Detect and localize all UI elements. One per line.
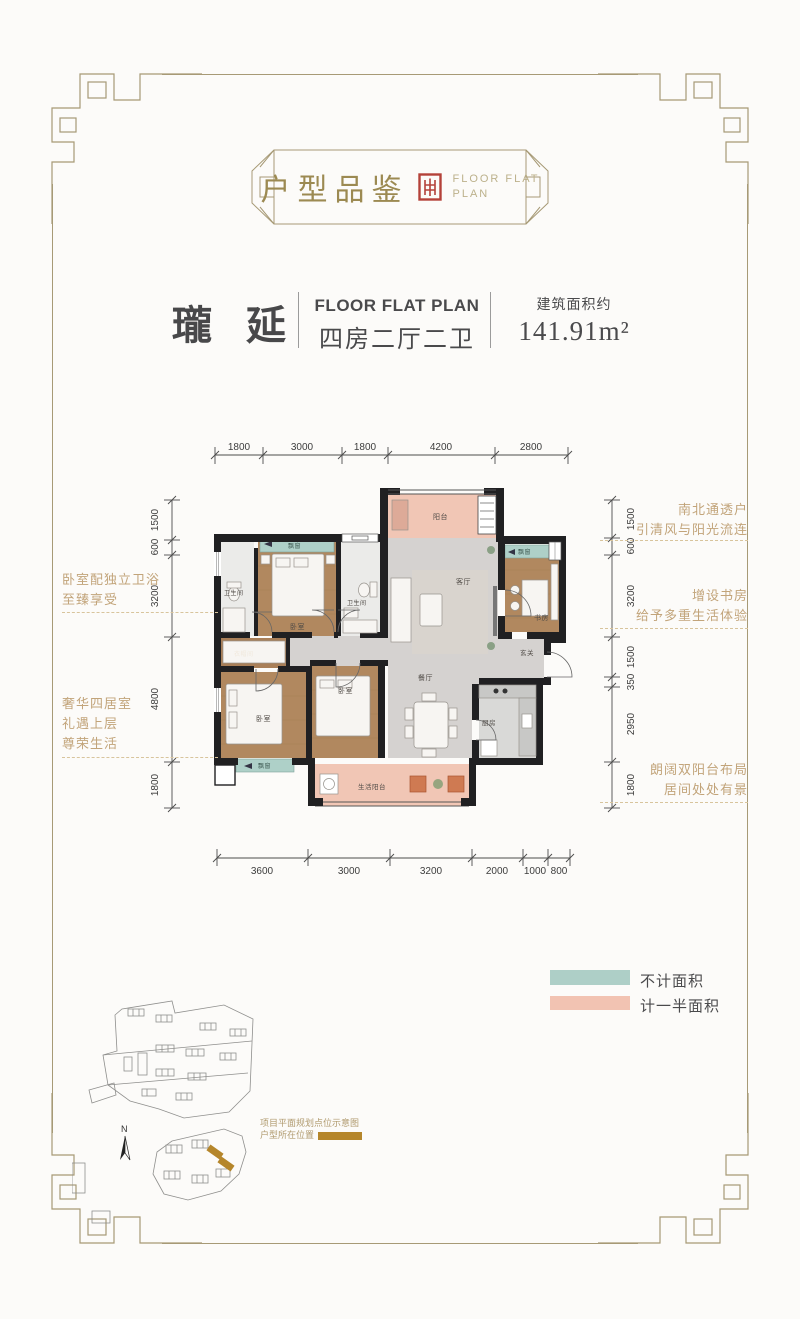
annotation-dash (600, 802, 748, 803)
dim-left-1: 600 (150, 538, 161, 555)
dim-bottom-5: 800 (551, 866, 568, 877)
annotation-left-2: 奢华四居室 礼遇上层 尊荣生活 (62, 694, 202, 754)
dim-bottom-2: 3200 (420, 866, 443, 877)
annotation-dash (600, 628, 748, 629)
highlighted-building (206, 1145, 234, 1172)
title-divider-2 (490, 292, 491, 348)
label-entry: 玄关 (520, 648, 534, 657)
dim-bottom-3: 2000 (486, 866, 509, 877)
layout-label: 四房二厅二卫 (308, 319, 486, 354)
annotation-right-3: 朗阔双阳台布局 居间处处有景 (608, 760, 748, 800)
label-cloakroom: 衣帽间 (234, 650, 254, 658)
dimension-chain-top: 1800 3000 1800 4200 2800 (205, 438, 575, 466)
dimension-chain-bottom: 3600 3000 3200 2000 1000 800 (205, 844, 575, 878)
dim-top-1: 3000 (291, 442, 314, 453)
site-plan-note: 项目平面规划点位示意图 户型所在位置 (260, 1117, 362, 1141)
dim-bottom-0: 3600 (251, 866, 274, 877)
area-label: 建筑面积约 (498, 294, 650, 314)
label-bedroom-1: 卧室 (290, 622, 305, 631)
dim-left-4: 1800 (150, 773, 161, 796)
ac-shaft (478, 496, 496, 534)
badge-subtitle: FLOOR FLAT PLAN (452, 172, 539, 202)
badge-subtitle-line2: PLAN (452, 188, 489, 200)
dimension-chain-left: 1500 600 3200 4800 1800 (146, 488, 204, 818)
label-balcony: 阳台 (433, 512, 448, 521)
area-value: 141.91m² (498, 316, 650, 347)
annotation-right-2: 增设书房 给予多重生活体验 (608, 586, 748, 626)
annotation-left-1: 卧室配独立卫浴 至臻享受 (62, 570, 202, 610)
dim-top-0: 1800 (228, 442, 251, 453)
label-kitchen: 厨房 (482, 718, 496, 727)
annotation-right-1: 南北通透户 引清风与阳光流连 (608, 500, 748, 540)
north-arrow-icon: N (120, 1124, 130, 1160)
site-plan-map: N (72, 995, 372, 1225)
badge-title: 户型品鉴 (260, 165, 408, 209)
annotation-dash (600, 540, 748, 541)
dim-top-4: 2800 (520, 442, 543, 453)
pillar (215, 765, 235, 785)
dim-top-3: 4200 (430, 442, 453, 453)
layout-block: FLOOR FLAT PLAN 四房二厅二卫 (308, 296, 486, 354)
unit-location-swatch (318, 1132, 362, 1140)
dim-bottom-4: 1000 (524, 866, 547, 877)
label-bay-1: 飘窗 (288, 542, 301, 550)
label-bay-master: 飘窗 (258, 762, 271, 770)
seal-icon (418, 173, 442, 201)
legend-swatch-half (550, 996, 630, 1010)
legend-label-excluded: 不计面积 (640, 970, 704, 991)
label-bathroom-1: 卫生间 (224, 589, 244, 597)
plan-en-label: FLOOR FLAT PLAN (308, 296, 486, 316)
label-living: 客厅 (456, 577, 471, 586)
label-bay-study: 飘窗 (518, 548, 531, 556)
north-label: N (121, 1124, 128, 1134)
frame-corner-bottom-right (598, 1093, 758, 1253)
dim-bottom-1: 3000 (338, 866, 361, 877)
label-life-balcony: 生活阳台 (358, 782, 386, 791)
label-bedroom-3: 卧室 (338, 686, 353, 695)
frame-corner-top-right (598, 64, 758, 224)
title-divider-1 (298, 292, 299, 348)
dim-right-3: 1500 (626, 645, 637, 668)
label-bathroom-2: 卫生间 (347, 599, 367, 607)
unit-name: 瓏 延 (172, 293, 307, 351)
floor-plan: 阳台 卫生间 飘窗 卧室 卫生间 客厅 飘窗 书房 玄关 衣帽间 卧室 卧室 餐… (214, 488, 594, 818)
frame-corner-top-left (42, 64, 202, 224)
legend-swatch-excluded (550, 970, 630, 985)
dim-left-0: 1500 (150, 508, 161, 531)
area-block: 建筑面积约 141.91m² (498, 294, 650, 347)
annotation-dash (62, 757, 218, 758)
label-bedroom-master: 卧室 (256, 714, 271, 723)
label-dining: 餐厅 (418, 673, 433, 682)
annotation-dash (62, 612, 218, 613)
dim-right-4: 350 (626, 673, 637, 690)
dim-top-2: 1800 (354, 442, 377, 453)
badge: 户型品鉴 FLOOR FLAT PLAN (244, 141, 556, 233)
label-study: 书房 (534, 613, 549, 622)
dim-right-5: 2950 (626, 712, 637, 735)
legend-label-half: 计一半面积 (640, 995, 720, 1016)
badge-subtitle-line1: FLOOR FLAT (452, 173, 539, 185)
room-entry (498, 639, 544, 684)
